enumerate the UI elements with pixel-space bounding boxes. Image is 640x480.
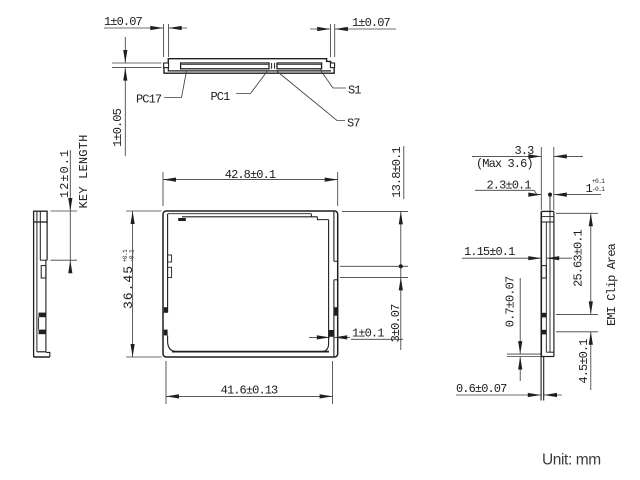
svg-text:(Max 3.6): (Max 3.6) — [476, 157, 533, 171]
svg-text:PC17: PC17 — [136, 93, 162, 107]
svg-text:4.5±0.1: 4.5±0.1 — [577, 339, 591, 384]
svg-text:Unit: mm: Unit: mm — [542, 452, 601, 469]
svg-text:PC1: PC1 — [211, 90, 231, 104]
svg-text:-0.1: -0.1 — [129, 249, 136, 262]
svg-text:1±0.07: 1±0.07 — [104, 15, 143, 29]
svg-text:1±0.1: 1±0.1 — [352, 327, 384, 341]
svg-text:-0.1: -0.1 — [592, 186, 605, 193]
svg-text:+0.1: +0.1 — [592, 178, 605, 185]
svg-text:S1: S1 — [348, 84, 361, 98]
svg-text:0.6±0.07: 0.6±0.07 — [456, 382, 507, 396]
svg-text:3.3: 3.3 — [515, 144, 535, 158]
svg-text:1±0.07: 1±0.07 — [352, 16, 391, 30]
svg-text:KEY LENGTH: KEY LENGTH — [77, 134, 91, 208]
svg-text:EMI Clip Area: EMI Clip Area — [605, 243, 619, 326]
svg-text:0.7±0.07: 0.7±0.07 — [503, 276, 517, 327]
svg-text:42.8±0.1: 42.8±0.1 — [225, 168, 276, 182]
svg-text:1.15±0.1: 1.15±0.1 — [464, 245, 515, 259]
svg-text:S7: S7 — [347, 117, 360, 131]
svg-text:13.8±0.1: 13.8±0.1 — [390, 147, 404, 198]
svg-text:2.3±0.1: 2.3±0.1 — [487, 179, 532, 193]
svg-text:36.45: 36.45 — [121, 265, 136, 309]
svg-text:12±0.1: 12±0.1 — [58, 149, 72, 198]
svg-text:3±0.07: 3±0.07 — [389, 304, 403, 343]
svg-text:25.63±0.1: 25.63±0.1 — [572, 229, 586, 286]
svg-text:41.6±0.13: 41.6±0.13 — [221, 384, 278, 398]
svg-text:1±0.05: 1±0.05 — [111, 108, 125, 147]
